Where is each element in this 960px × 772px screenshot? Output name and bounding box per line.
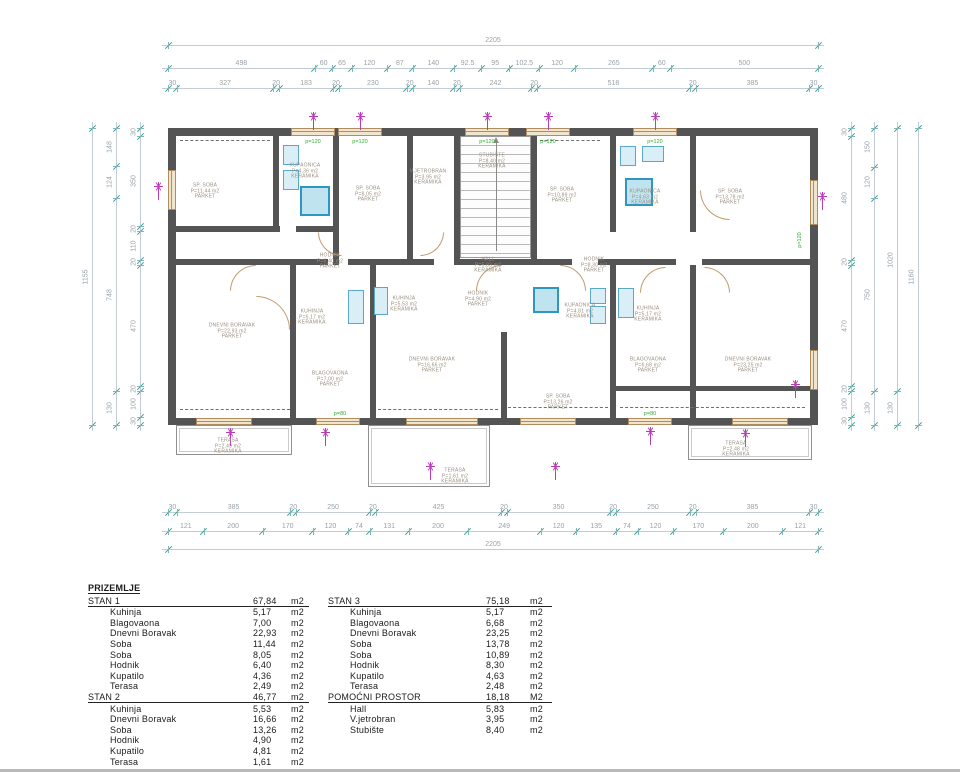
sanitary-fixture xyxy=(618,288,634,318)
room-name: Soba xyxy=(88,639,253,649)
dimension-tick-cross xyxy=(468,528,469,535)
vent-marker-icon xyxy=(424,462,436,482)
wall xyxy=(176,226,280,232)
dimension-value: 327 xyxy=(219,80,231,87)
group-unit: M2 xyxy=(530,692,552,702)
room-label-line: KERAMIKA xyxy=(565,315,596,321)
room-name: Dnevni Boravak xyxy=(328,628,486,638)
dimension-value: 470 xyxy=(842,320,849,332)
dimension-tick-cross xyxy=(576,528,577,535)
table-group-header: STAN 167,84m2 xyxy=(88,595,309,607)
dimension-tick-cross xyxy=(137,391,144,392)
table-row: Kupatilo4,81m2 xyxy=(88,745,309,756)
dimension-value: 110 xyxy=(131,240,138,251)
vent-marker-icon xyxy=(649,112,661,132)
dimension-value: 95 xyxy=(491,60,499,67)
window-height-label: p=80 xyxy=(644,411,656,417)
table-row: Dnevni Boravak22,93m2 xyxy=(88,628,309,639)
table-row: Stubište8,40m2 xyxy=(328,724,552,735)
table-column: STAN 167,84m2Kuhinja5,17m2Blagovaona7,00… xyxy=(88,595,309,767)
group-name: STAN 3 xyxy=(328,596,486,606)
room-unit: m2 xyxy=(530,714,552,724)
dimension-value: 20 xyxy=(453,80,461,87)
dimension-value: 30 xyxy=(842,417,849,425)
room-unit: m2 xyxy=(291,607,309,617)
room-label-line: PARKET xyxy=(355,198,381,204)
area-tables: PRIZEMLJE STAN 167,84m2Kuhinja5,17m2Blag… xyxy=(88,583,552,767)
wall xyxy=(690,265,696,418)
door-swing-arc xyxy=(704,267,730,293)
parapet-dashed-line xyxy=(180,140,270,141)
group-name: POMOĆNI PROSTOR xyxy=(328,692,486,702)
room-label: STUBIŠTEP=8,40 m2KERAMIKA xyxy=(478,154,505,171)
dimension-tick-cross xyxy=(818,42,819,49)
dimension-tick-cross xyxy=(313,528,314,535)
room-area: 23,25 xyxy=(486,628,530,638)
room-label-line: PARKET xyxy=(317,265,343,271)
window-height-label: p=120 xyxy=(647,139,662,145)
room-label-line: KERAMIKA xyxy=(298,321,325,327)
dimension-tick-cross xyxy=(894,128,901,129)
group-unit: m2 xyxy=(291,596,309,606)
dimension-line xyxy=(92,122,93,431)
dimension-value: 120 xyxy=(325,523,337,530)
dimension-value: 200 xyxy=(227,523,239,530)
dimension-value: 20 xyxy=(609,504,617,511)
room-label-line: KERAMIKA xyxy=(390,308,417,314)
room-label-line: KERAMIKA xyxy=(214,450,241,456)
room-unit: m2 xyxy=(530,628,552,638)
group-area: 75,18 xyxy=(486,596,530,606)
dimension-value: 265 xyxy=(608,60,620,67)
room-unit: m2 xyxy=(291,714,309,724)
room-unit: m2 xyxy=(291,681,309,691)
dimension-value: 249 xyxy=(498,523,510,530)
wall xyxy=(348,259,434,265)
dimension-value: 87 xyxy=(396,60,404,67)
table-row: Blagovaona7,00m2 xyxy=(88,617,309,628)
dimension-value: 130 xyxy=(865,402,872,414)
dimension-tick-cross xyxy=(113,166,120,167)
dimension-value: 250 xyxy=(647,504,659,511)
door-swing-arc xyxy=(640,267,666,293)
room-label: SP. SOBAP=10,89 m2PARKET xyxy=(547,188,576,205)
dimension-value: 500 xyxy=(738,60,750,67)
dimension-value: 1160 xyxy=(909,269,916,284)
window xyxy=(810,350,818,390)
dimension-value: 150 xyxy=(865,142,872,154)
room-label-line: PARKET xyxy=(543,406,572,412)
wall xyxy=(273,136,279,232)
dimension-tick-cross xyxy=(89,425,96,426)
dimension-tick-cross xyxy=(638,528,639,535)
wall xyxy=(531,136,537,265)
door-swing-arc xyxy=(256,296,290,330)
room-unit: m2 xyxy=(530,639,552,649)
room-label: DNEVNI BORAVAKP=16,66 m2PARKET xyxy=(409,358,456,375)
dimension-value: 131 xyxy=(383,523,395,530)
dimension-tick-cross xyxy=(370,528,371,535)
window xyxy=(196,418,252,425)
dimension-value: 100 xyxy=(842,398,849,410)
room-area: 8,30 xyxy=(486,660,530,670)
room-name: Blagovaona xyxy=(328,618,486,628)
room-name: Kuhinja xyxy=(88,607,253,617)
shower-fixture xyxy=(533,287,559,313)
room-name: Kupatilo xyxy=(88,746,253,756)
dimension-value: 20 xyxy=(131,258,138,266)
room-label-line: KERAMIKA xyxy=(478,165,505,171)
table-row: Soba11,44m2 xyxy=(88,638,309,649)
room-label: SP. SOBAP=8,05 m2PARKET xyxy=(355,187,381,204)
dimension-value: 20 xyxy=(530,80,538,87)
window xyxy=(628,418,672,425)
group-unit: m2 xyxy=(530,596,552,606)
dimension-line xyxy=(162,512,824,513)
room-name: Hodnik xyxy=(88,660,253,670)
dimension-tick-cross xyxy=(481,65,482,72)
dimension-value: 20 xyxy=(272,80,280,87)
room-label-line: KERAMIKA xyxy=(630,201,661,207)
room-area: 5,17 xyxy=(486,607,530,617)
dimension-line xyxy=(162,88,824,89)
room-unit: m2 xyxy=(530,607,552,617)
room-name: Hodnik xyxy=(88,735,253,745)
dimension-tick-cross xyxy=(168,42,169,49)
room-unit: m2 xyxy=(530,650,552,660)
dimension-value: 170 xyxy=(692,523,704,530)
sanitary-fixture xyxy=(590,288,606,304)
room-area: 11,44 xyxy=(253,639,291,649)
room-area: 4,81 xyxy=(253,746,291,756)
dimension-tick-cross xyxy=(848,136,855,137)
dimension-tick-cross xyxy=(915,425,922,426)
dimension-value: 425 xyxy=(433,504,445,511)
dimension-value: 120 xyxy=(553,523,565,530)
dimension-value: 750 xyxy=(865,289,872,301)
dimension-tick-cross xyxy=(575,65,576,72)
dimension-value: 120 xyxy=(363,60,375,67)
dimension-value: 385 xyxy=(747,80,759,87)
dimension-tick-cross xyxy=(409,528,410,535)
dimension-value: 140 xyxy=(427,80,439,87)
table-row: Soba13,26m2 xyxy=(88,724,309,735)
dimension-value: 30 xyxy=(169,80,177,87)
dimension-tick-cross xyxy=(848,417,855,418)
dimension-value: 20 xyxy=(131,225,138,233)
group-area: 67,84 xyxy=(253,596,291,606)
group-area: 18,18 xyxy=(486,692,530,702)
table-row: Soba10,89m2 xyxy=(328,649,552,660)
dimension-value: 30 xyxy=(131,417,138,425)
room-label-line: PARKET xyxy=(409,369,456,375)
table-row: Kuhinja5,17m2 xyxy=(88,607,309,618)
room-unit: m2 xyxy=(291,735,309,745)
dimension-tick-cross xyxy=(848,391,855,392)
table-row: Kupatilo4,36m2 xyxy=(88,670,309,681)
room-name: V.jetrobran xyxy=(328,714,486,724)
wall xyxy=(168,418,818,425)
window xyxy=(732,418,788,425)
room-label-line: PARKET xyxy=(581,269,607,275)
group-unit: m2 xyxy=(291,692,309,702)
dimension-value: 350 xyxy=(131,175,138,187)
room-unit: m2 xyxy=(291,639,309,649)
floorplan-sheet: p=120p=120p=120p=120p=120p=80p=80p=120SP… xyxy=(0,0,960,772)
window xyxy=(406,418,478,425)
dimension-value: 74 xyxy=(355,523,363,530)
dimension-value: 124 xyxy=(107,176,114,188)
dimension-value: 200 xyxy=(432,523,444,530)
dimension-value: 20 xyxy=(500,504,508,511)
dimension-tick-cross xyxy=(539,65,540,72)
dimension-tick-cross xyxy=(137,265,144,266)
room-label-line: PARKET xyxy=(191,195,220,201)
group-name: STAN 2 xyxy=(88,692,253,702)
dimension-value: 100 xyxy=(131,398,138,410)
dimension-value: 130 xyxy=(888,402,895,414)
dimension-value: 200 xyxy=(747,523,759,530)
dimension-value: 1020 xyxy=(888,252,895,268)
room-unit: m2 xyxy=(530,725,552,735)
dimension-tick-cross xyxy=(137,417,144,418)
dimension-value: 121 xyxy=(180,523,192,530)
dimension-tick-cross xyxy=(137,260,144,261)
room-label-line: PARKET xyxy=(312,383,348,389)
window xyxy=(520,418,576,425)
table-row: Hodnik6,40m2 xyxy=(88,660,309,671)
dimension-value: 2205 xyxy=(485,37,501,44)
dimension-tick-cross xyxy=(113,128,120,129)
floor-title: PRIZEMLJE xyxy=(88,583,140,594)
dimension-tick-cross xyxy=(673,528,674,535)
dimension-value: 20 xyxy=(842,385,849,393)
room-name: Kuhinja xyxy=(88,704,253,714)
room-area: 5,53 xyxy=(253,704,291,714)
room-label-line: PARKET xyxy=(547,199,576,205)
room-name: Soba xyxy=(328,639,486,649)
room-label-line: KERAMIKA xyxy=(634,318,661,324)
vent-marker-icon xyxy=(354,112,366,132)
dimension-value: 350 xyxy=(553,504,565,511)
room-area: 13,26 xyxy=(253,725,291,735)
room-label: KUPAONICAP=4,36 m2KERAMIKA xyxy=(290,164,321,181)
dimension-tick-cross xyxy=(818,85,819,92)
room-name: Blagovaona xyxy=(88,618,253,628)
room-label: BLAGOVAONAP=7,00 m2PARKET xyxy=(312,372,348,389)
room-name: Kuhinja xyxy=(328,607,486,617)
wall xyxy=(290,265,296,418)
dimension-tick-cross xyxy=(782,528,783,535)
table-row: Terasa2,49m2 xyxy=(88,681,309,692)
dimension-tick-cross xyxy=(113,198,120,199)
dimension-tick-cross xyxy=(137,136,144,137)
sanitary-fixture xyxy=(620,146,636,166)
dimension-value: 498 xyxy=(236,60,248,67)
dimension-value: 2205 xyxy=(485,541,501,548)
dimension-tick-cross xyxy=(413,65,414,72)
window-height-label: p=120 xyxy=(540,139,555,145)
room-unit: m2 xyxy=(291,704,309,714)
dimension-value: 480 xyxy=(842,192,849,204)
sanitary-fixture xyxy=(642,146,664,162)
dimension-tick-cross xyxy=(454,65,455,72)
dimension-value: 120 xyxy=(551,60,563,67)
room-unit: m2 xyxy=(291,671,309,681)
dimension-tick-cross xyxy=(352,65,353,72)
dimension-value: 385 xyxy=(747,504,759,511)
room-label: TERASAP=2,49 m2KERAMIKA xyxy=(214,439,241,456)
dimension-tick-cross xyxy=(113,391,120,392)
dimension-value: 30 xyxy=(169,504,177,511)
dimension-value: 121 xyxy=(794,523,806,530)
dimension-value: 120 xyxy=(650,523,662,530)
room-label-line: KERAMIKA xyxy=(410,181,447,187)
wall xyxy=(501,332,507,418)
dimension-tick-cross xyxy=(818,65,819,72)
room-unit: m2 xyxy=(291,660,309,670)
room-name: Terasa xyxy=(328,681,486,691)
window-height-label: p=120 xyxy=(797,232,803,247)
dimension-tick-cross xyxy=(871,425,878,426)
dimension-value: 20 xyxy=(689,80,697,87)
table-row: Soba8,05m2 xyxy=(88,649,309,660)
window xyxy=(316,418,360,425)
wall xyxy=(610,265,616,418)
dimension-value: 748 xyxy=(107,289,114,301)
dimension-value: 60 xyxy=(320,60,328,67)
dimension-tick-cross xyxy=(168,528,169,535)
dimension-value: 20 xyxy=(369,504,377,511)
room-name: Soba xyxy=(328,650,486,660)
table-row: Hall5,83m2 xyxy=(328,703,552,714)
room-name: Hall xyxy=(328,704,486,714)
room-label: KUPAONICAP=4,63 m2KERAMIKA xyxy=(630,190,661,207)
dimension-tick-cross xyxy=(137,128,144,129)
room-area: 1,61 xyxy=(253,757,291,767)
dimension-value: 20 xyxy=(406,80,414,87)
dimension-tick-cross xyxy=(348,528,349,535)
room-area: 8,05 xyxy=(253,650,291,660)
table-group-header: POMOĆNI PROSTOR18,18M2 xyxy=(328,691,552,703)
wall xyxy=(407,136,413,265)
dimension-value: 20 xyxy=(332,80,340,87)
dimension-value: 242 xyxy=(490,80,502,87)
dimension-tick-cross xyxy=(177,85,178,92)
window-height-label: p=80 xyxy=(334,411,346,417)
dimension-tick-cross xyxy=(848,265,855,266)
room-label: TERASAP=2,48 m2KERAMIKA xyxy=(722,442,749,459)
room-unit: m2 xyxy=(291,650,309,660)
dimension-tick-cross xyxy=(723,528,724,535)
room-area: 4,36 xyxy=(253,671,291,681)
dimension-value: 250 xyxy=(327,504,339,511)
room-label: KUHINJAP=5,17 m2KERAMIKA xyxy=(298,310,325,327)
room-name: Terasa xyxy=(88,757,253,767)
dimension-value: 20 xyxy=(842,258,849,266)
group-name: STAN 1 xyxy=(88,596,253,606)
table-row: Soba13,78m2 xyxy=(328,638,552,649)
dimension-tick-cross xyxy=(871,391,878,392)
window-height-label: p=120 xyxy=(305,139,320,145)
wall xyxy=(610,136,616,232)
room-label-line: PARKET xyxy=(725,369,772,375)
dimension-value: 518 xyxy=(608,80,620,87)
room-area: 6,68 xyxy=(486,618,530,628)
room-unit: m2 xyxy=(530,681,552,691)
dimension-tick-cross xyxy=(818,546,819,553)
room-area: 6,40 xyxy=(253,660,291,670)
wall xyxy=(702,259,810,265)
dimension-tick-cross xyxy=(541,528,542,535)
dimension-value: 230 xyxy=(367,80,379,87)
room-name: Terasa xyxy=(88,681,253,691)
room-area: 2,49 xyxy=(253,681,291,691)
dimension-value: 470 xyxy=(131,320,138,332)
room-label-line: KERAMIKA xyxy=(290,175,321,181)
vent-marker-icon xyxy=(481,112,493,132)
room-unit: m2 xyxy=(530,704,552,714)
table-row: Hodnik8,30m2 xyxy=(328,660,552,671)
parapet-dashed-line xyxy=(378,409,498,410)
dimension-tick-cross xyxy=(315,65,316,72)
vent-marker-icon xyxy=(152,182,164,202)
vent-marker-icon xyxy=(816,192,828,212)
door-swing-arc xyxy=(420,232,444,256)
dimension-line xyxy=(897,122,898,431)
room-label: HALLP=5,83 m2KERAMIKA xyxy=(474,258,501,275)
dimension-tick-cross xyxy=(168,65,169,72)
room-name: Soba xyxy=(88,650,253,660)
dimension-tick-cross xyxy=(168,546,169,553)
parapet-dashed-line xyxy=(620,407,805,408)
sanitary-fixture xyxy=(374,287,388,315)
room-label: V.JETROBRANP=3,95 m2KERAMIKA xyxy=(410,170,447,187)
dimension-value: 135 xyxy=(590,523,602,530)
table-row: Dnevni Boravak16,66m2 xyxy=(88,714,309,725)
dimension-line xyxy=(162,45,824,46)
dimension-tick-cross xyxy=(332,65,333,72)
dimension-value: 20 xyxy=(131,385,138,393)
room-unit: m2 xyxy=(291,628,309,638)
dimension-value: 170 xyxy=(282,523,294,530)
dimension-value: 183 xyxy=(300,80,312,87)
dimension-value: 102.5 xyxy=(516,60,534,67)
room-label: TERASAP=1,61 m2KERAMIKA xyxy=(441,469,468,486)
dimension-line xyxy=(918,122,919,431)
dimension-tick-cross xyxy=(204,528,205,535)
room-label: KUHINJAP=5,17 m2KERAMIKA xyxy=(634,307,661,324)
wall xyxy=(176,259,328,265)
table-row: Terasa2,48m2 xyxy=(328,681,552,692)
table-row: Dnevni Boravak23,25m2 xyxy=(328,628,552,639)
room-area: 22,93 xyxy=(253,628,291,638)
door-swing-arc xyxy=(230,265,256,291)
room-label-line: PARKET xyxy=(715,201,744,207)
window-height-label: p=120 xyxy=(479,139,494,145)
vent-marker-icon xyxy=(307,112,319,132)
room-area: 13,78 xyxy=(486,639,530,649)
dimension-tick-cross xyxy=(848,128,855,129)
room-unit: m2 xyxy=(530,671,552,681)
window-height-label: p=120 xyxy=(352,139,367,145)
room-name: Hodnik xyxy=(328,660,486,670)
room-label: HODNIKP=6,40 m2PARKET xyxy=(317,254,343,271)
dimension-value: 1155 xyxy=(83,269,90,284)
table-row: V.jetrobran3,95m2 xyxy=(328,714,552,725)
table-group-header: STAN 246,77m2 xyxy=(88,691,309,703)
room-unit: m2 xyxy=(530,660,552,670)
